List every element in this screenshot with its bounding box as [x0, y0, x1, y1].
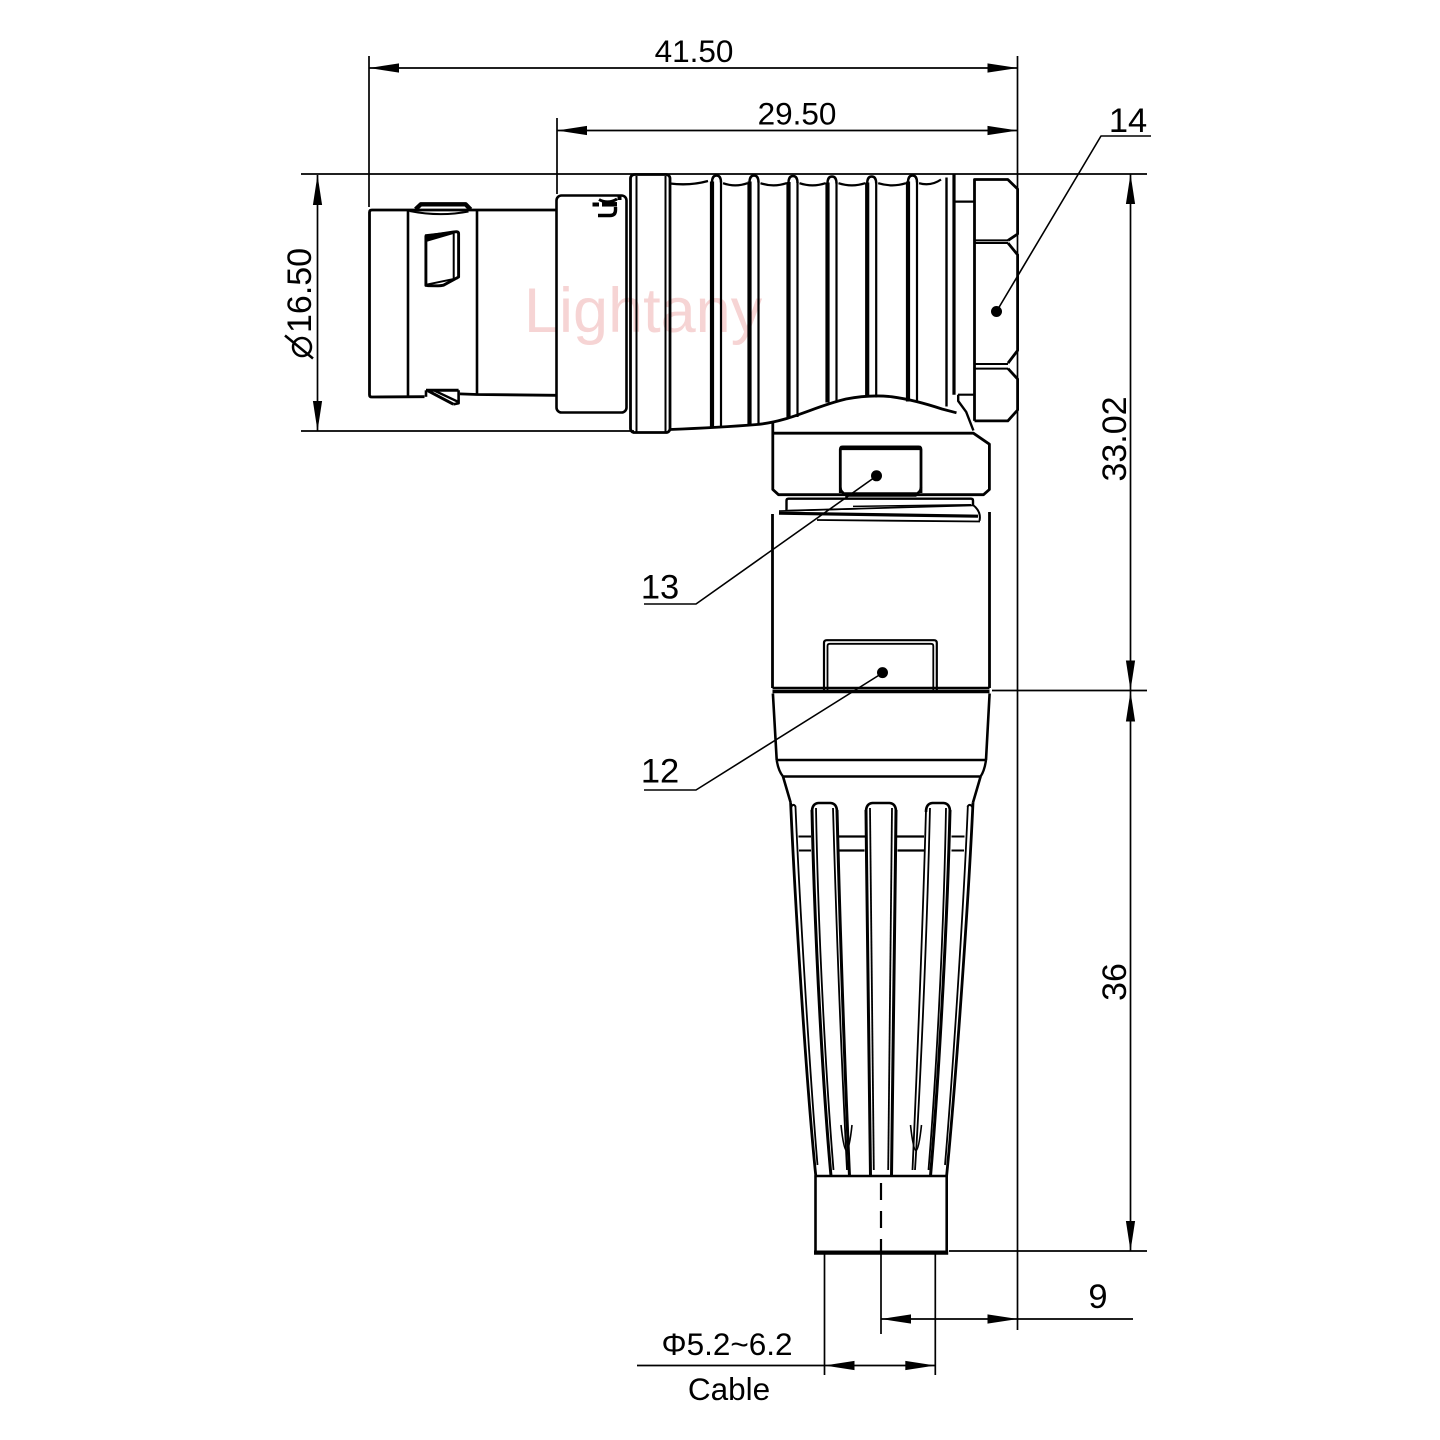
svg-text:Φ5.2~6.2: Φ5.2~6.2 [661, 1326, 792, 1362]
svg-text:14: 14 [1109, 102, 1147, 140]
svg-text:41.50: 41.50 [655, 33, 734, 69]
svg-text:29.50: 29.50 [758, 96, 837, 132]
svg-text:12: 12 [641, 753, 679, 791]
svg-text:16.50: 16.50 [281, 248, 319, 333]
svg-text:Cable: Cable [688, 1371, 770, 1407]
svg-text:Lightany: Lightany [524, 276, 763, 346]
svg-text:13: 13 [641, 569, 679, 607]
svg-text:9: 9 [1088, 1278, 1107, 1316]
svg-text:33.02: 33.02 [1096, 396, 1134, 481]
svg-text:36: 36 [1096, 963, 1134, 1001]
